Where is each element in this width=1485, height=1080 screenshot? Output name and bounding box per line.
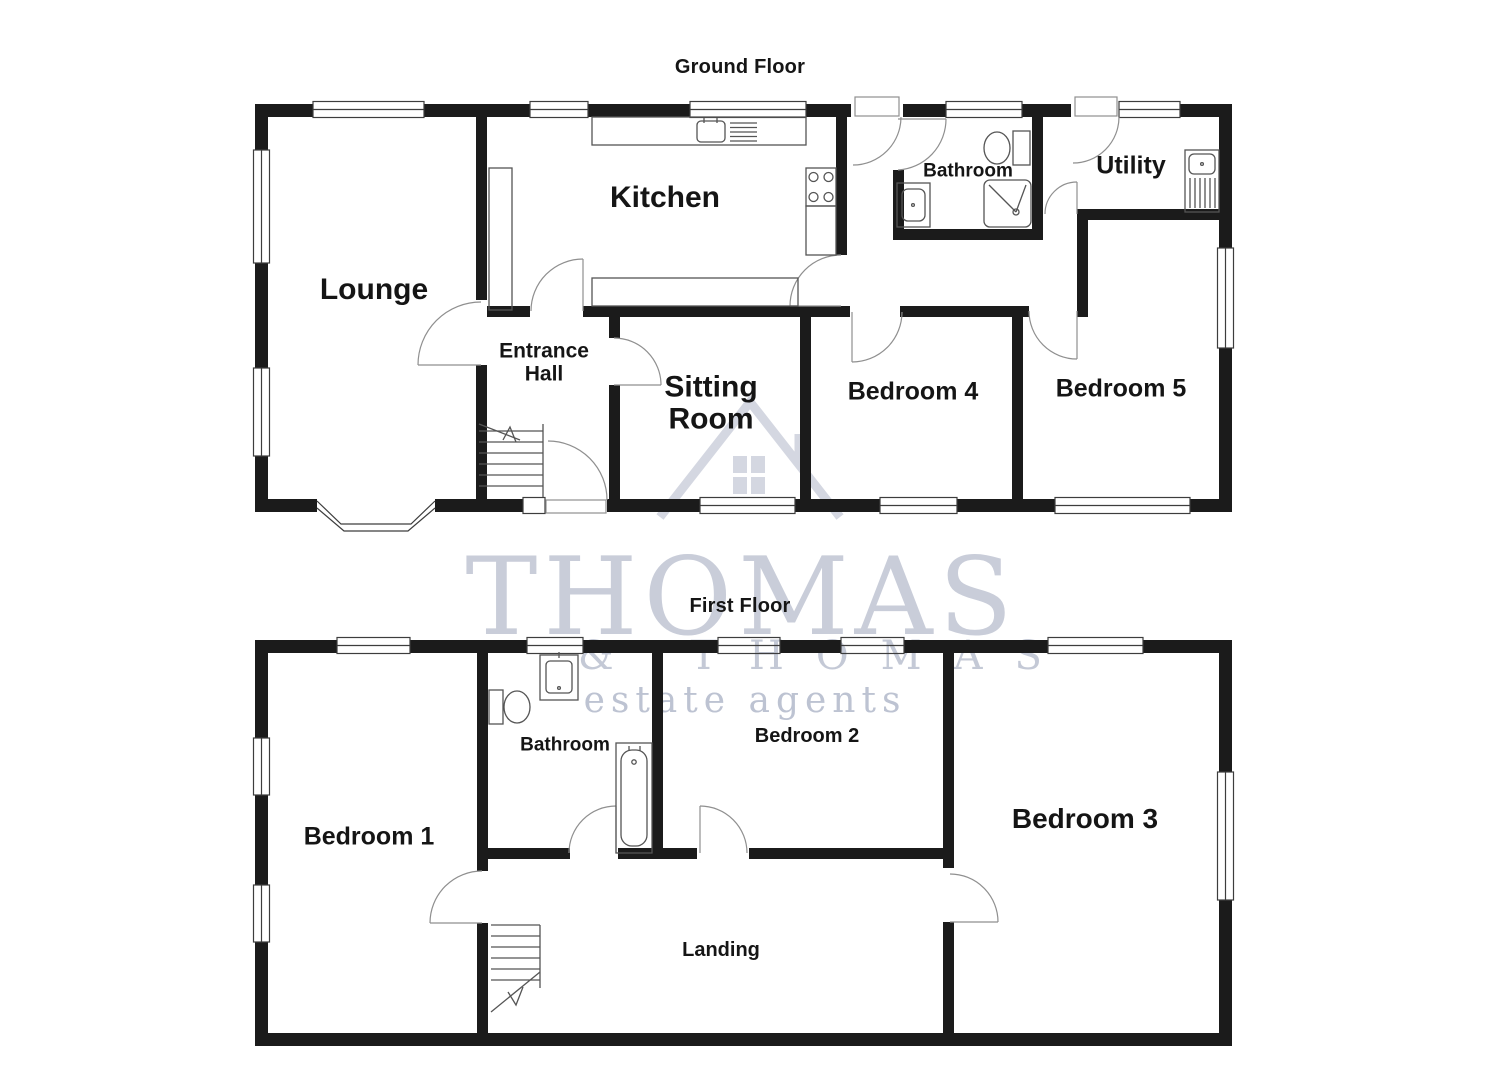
room-label-sitting-room: Sitting Room [664, 372, 757, 437]
room-label-landing: Landing [682, 940, 760, 962]
utility-sink-icon [1185, 150, 1219, 212]
room-label-bedroom-4: Bedroom 4 [848, 379, 979, 406]
floorplan-drawing: THOMAS & THOMAS estate agents [0, 0, 1485, 1080]
floorplan-page: THOMAS & THOMAS estate agents [0, 0, 1485, 1080]
room-label-kitchen: Kitchen [610, 182, 720, 214]
first-floor-doors [430, 806, 998, 923]
stairs-up-icon [479, 424, 543, 497]
room-label-bathroom-gf: Bathroom [923, 162, 1013, 183]
room-label-utility: Utility [1096, 153, 1165, 180]
first-floor-title: First Floor [689, 596, 790, 618]
room-label-lounge: Lounge [320, 274, 428, 306]
stairs-down-icon [491, 925, 540, 1012]
bathtub-icon [616, 743, 652, 853]
room-label-bathroom-ff: Bathroom [520, 736, 610, 757]
watermark-tagline: estate agents [584, 680, 907, 721]
hob-icon [806, 168, 836, 255]
shower-icon [984, 180, 1031, 227]
ground-floor-walls [255, 104, 1232, 512]
toilet-icon [489, 690, 530, 724]
bay-window [317, 501, 435, 524]
room-label-entrance-hall: Entrance Hall [499, 340, 589, 385]
watermark: THOMAS & THOMAS estate agents [465, 402, 1074, 721]
room-label-bedroom-3: Bedroom 3 [1012, 804, 1158, 834]
room-label-bedroom-2: Bedroom 2 [755, 726, 859, 748]
room-label-bedroom-5: Bedroom 5 [1056, 376, 1187, 403]
ground-floor-title: Ground Floor [675, 57, 805, 79]
room-label-bedroom-1: Bedroom 1 [304, 824, 435, 851]
